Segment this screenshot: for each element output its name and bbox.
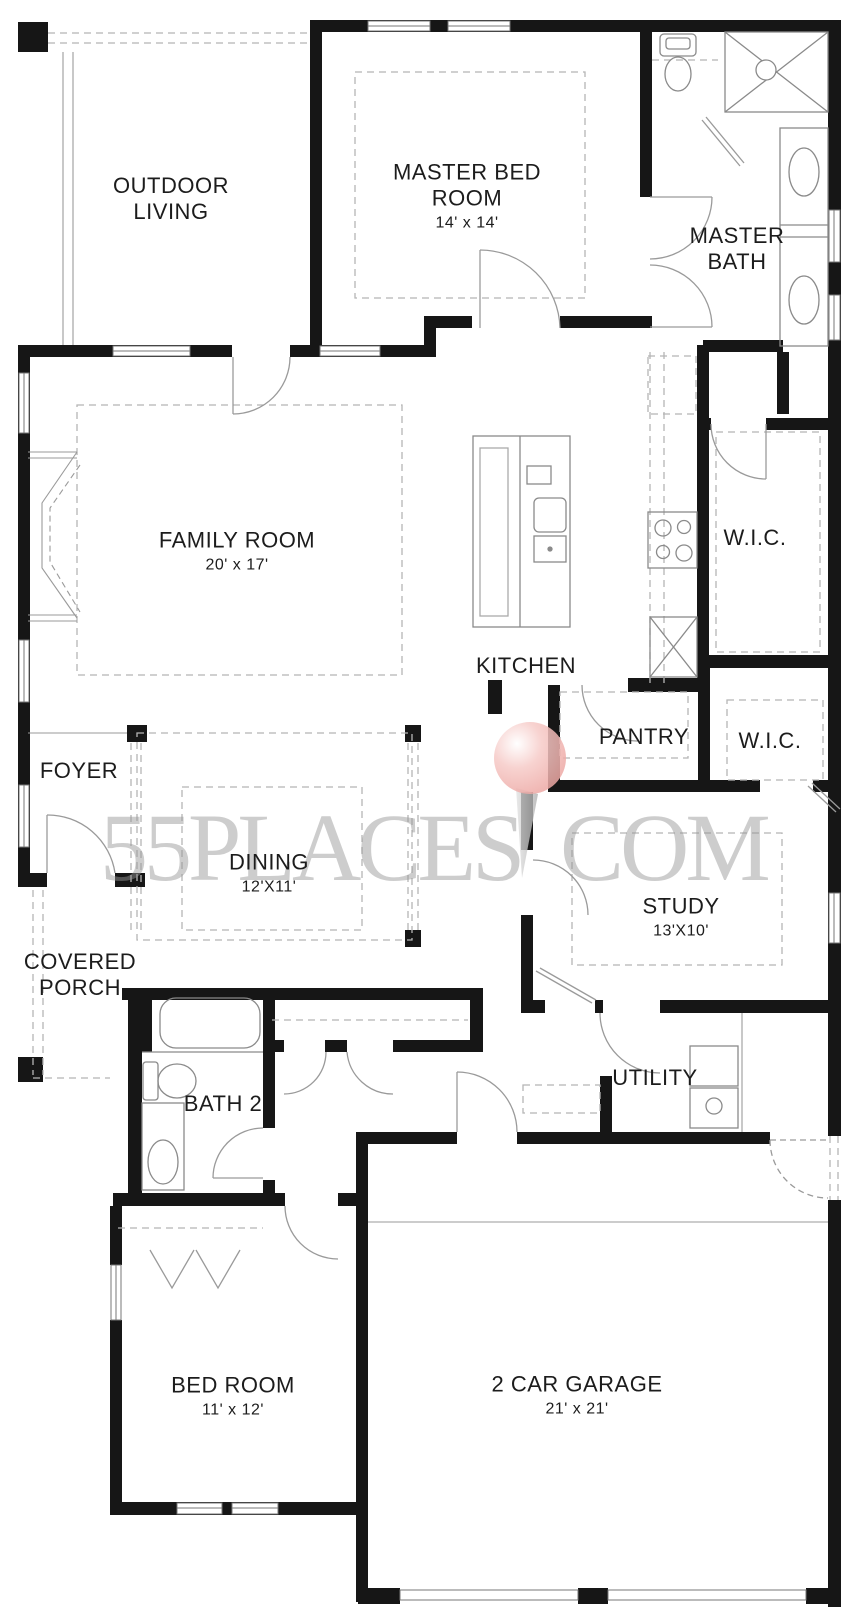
- room-label-foyer: FOYER: [9, 758, 149, 784]
- window: [19, 640, 29, 702]
- door-utility: [600, 1013, 660, 1073]
- room-label-family-room: FAMILY ROOM 20' x 17': [102, 528, 372, 575]
- room-label-bath-2: BATH 2: [148, 1091, 298, 1117]
- room-label-pantry: PANTRY: [559, 724, 729, 750]
- garage-door: [608, 1590, 806, 1600]
- garage-door: [400, 1590, 578, 1600]
- room-label-wic-master: W.I.C.: [695, 525, 815, 551]
- room-label-dining: DINING 12'X11': [184, 850, 354, 897]
- door-garage-hall: [457, 1072, 517, 1132]
- window: [829, 210, 840, 262]
- room-label-master-bath: MASTER BATH: [672, 223, 802, 275]
- room-label-kitchen: KITCHEN: [426, 653, 626, 679]
- floor-plan-page: 55PLACES COM OUTDOOR LIVING MASTER BED R…: [0, 0, 860, 1618]
- window: [111, 1265, 121, 1320]
- room-label-garage: 2 CAR GARAGE 21' x 21': [437, 1372, 717, 1419]
- room-label-master-bedroom: MASTER BED ROOM 14' x 14': [392, 160, 542, 233]
- window: [448, 21, 510, 31]
- cooktop-icon: [648, 512, 697, 568]
- room-label-study: STUDY 13'X10': [596, 894, 766, 941]
- door-front-entry: [47, 815, 115, 873]
- room-label-covered-porch: COVERED PORCH: [13, 949, 148, 1001]
- window: [177, 1503, 222, 1514]
- window: [829, 893, 840, 943]
- bifold-closet-doors: [150, 1250, 240, 1288]
- window: [232, 1503, 278, 1514]
- window: [19, 373, 29, 433]
- room-label-outdoor-living: OUTDOOR LIVING: [96, 173, 246, 225]
- window: [829, 295, 840, 340]
- window: [368, 21, 430, 31]
- door-hall-closet: [347, 1052, 393, 1094]
- door-master-bedroom: [480, 250, 560, 328]
- room-label-utility: UTILITY: [580, 1065, 730, 1091]
- shower-icon: [725, 32, 828, 112]
- future-garage-door: [770, 1140, 828, 1198]
- room-label-wic-study: W.I.C.: [710, 728, 830, 754]
- door-bath-2: [213, 1128, 263, 1178]
- window: [320, 346, 380, 356]
- door-bedroom-2: [285, 1206, 338, 1259]
- cabinet-x-icon: [650, 617, 697, 677]
- window: [19, 785, 29, 847]
- window: [113, 346, 190, 356]
- room-label-bedroom-2: BED ROOM 11' x 12': [128, 1373, 338, 1420]
- bathtub-icon: [142, 998, 263, 1052]
- toilet-icon: [660, 34, 696, 91]
- kitchen-island-icon: [473, 436, 570, 627]
- door-master-toilet: [702, 117, 744, 166]
- door-hall-closet: [284, 1052, 326, 1094]
- door-study-hall: [536, 968, 596, 1003]
